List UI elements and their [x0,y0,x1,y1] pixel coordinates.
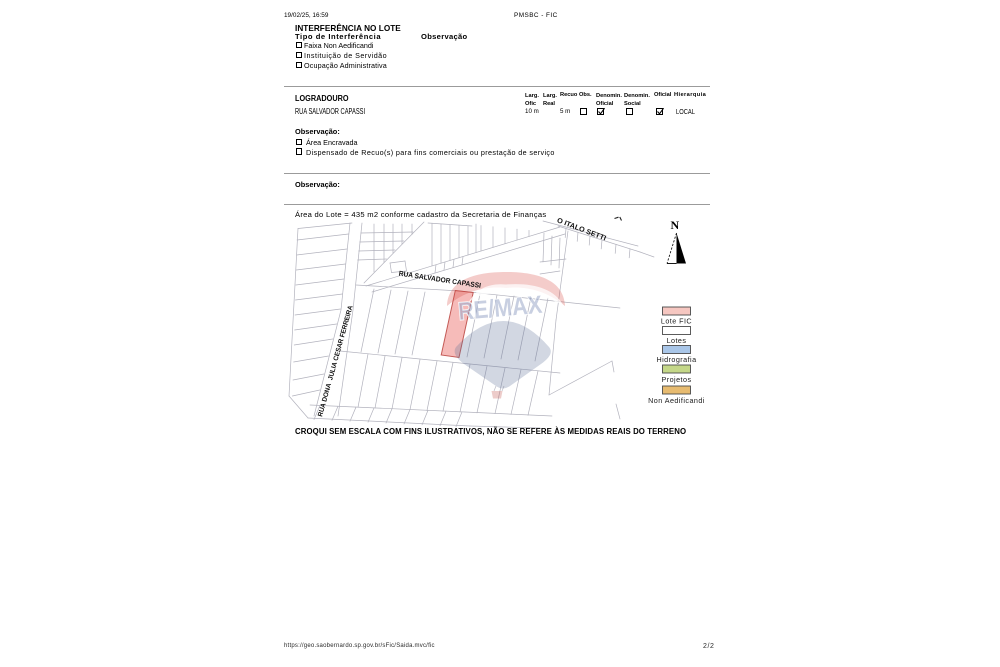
svg-text:RE/MAX: RE/MAX [457,291,543,326]
svg-text:RUA DONA JULIA CESAR FERREIRA: RUA DONA JULIA CESAR FERREIRA [317,305,354,418]
svg-text:Lote FIC: Lote FIC [661,317,692,326]
svg-text:O ITALO SETTI: O ITALO SETTI [556,216,607,242]
svg-text:Non Aedificandi: Non Aedificandi [648,396,705,405]
svg-text:Projetos: Projetos [662,375,692,384]
svg-text:Hidrografia: Hidrografia [656,355,696,364]
svg-text:RUA SALVADOR CAPASSI: RUA SALVADOR CAPASSI [398,270,481,290]
svg-text:N: N [671,218,680,232]
svg-text:Lotes: Lotes [667,336,687,345]
